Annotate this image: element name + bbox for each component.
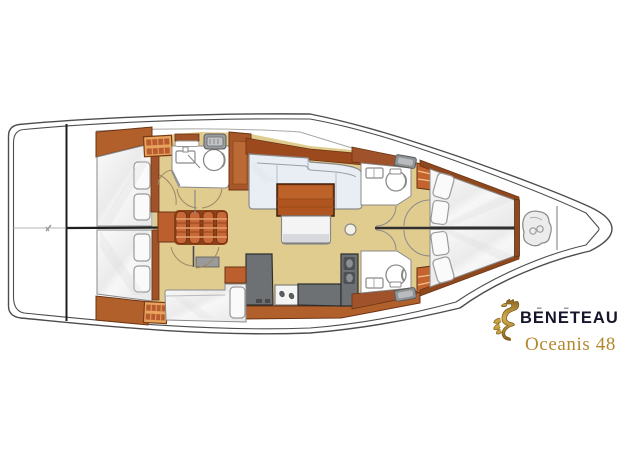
svg-text:BENETEAU: BENETEAU [520,309,619,327]
svg-text:Oceanis 48: Oceanis 48 [525,334,616,355]
